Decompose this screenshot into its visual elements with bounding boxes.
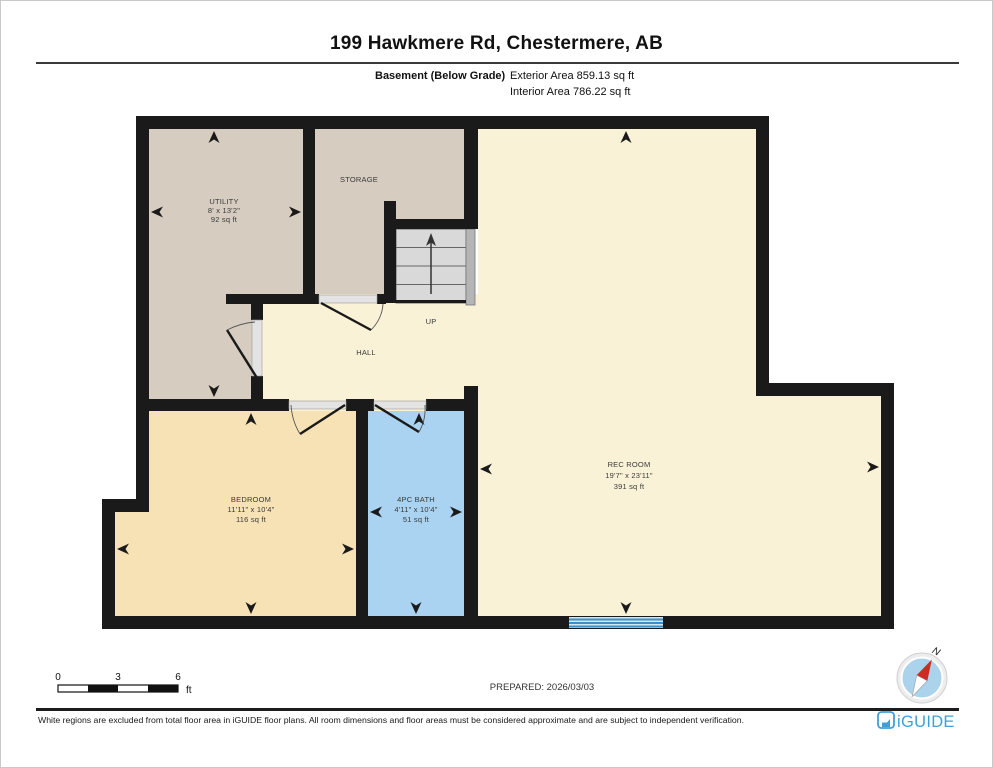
- utility-name: UTILITY: [209, 197, 238, 206]
- utility-area: 92 sq ft: [211, 215, 238, 224]
- floorplan-drawing: UTILITY 8' x 13'2" 92 sq ft STORAGE UP H…: [1, 1, 993, 768]
- storage-door-threshold: [319, 295, 377, 303]
- utility-dims: 8' x 13'2": [208, 206, 240, 215]
- bedroom-area: 116 sq ft: [236, 515, 267, 524]
- scale-bar-segment: [88, 685, 118, 692]
- bedroom-dims: 11'11" x 10'4": [228, 505, 275, 514]
- scale-bar-segment: [148, 685, 178, 692]
- utility-door-threshold: [252, 320, 262, 376]
- rec-room-floor: [478, 129, 881, 616]
- rec-room-dims: 19'7" x 23'11": [605, 471, 653, 480]
- iguide-logo: iGUIDE: [878, 712, 955, 731]
- stair-railing: [466, 229, 475, 305]
- prepared-date: PREPARED: 2026/03/03: [490, 682, 594, 693]
- rec-room-area: 391 sq ft: [614, 482, 645, 491]
- rec-room-name: REC ROOM: [608, 460, 651, 469]
- bath-name: 4PC BATH: [397, 495, 435, 504]
- floorplan-page: 199 Hawkmere Rd, Chestermere, AB Basemen…: [0, 0, 993, 768]
- staircase: [396, 229, 475, 305]
- rec-room-window: [569, 617, 663, 628]
- storage-name: STORAGE: [340, 175, 378, 184]
- bath-area: 51 sq ft: [403, 515, 430, 524]
- scale-start-label: 0: [55, 672, 61, 683]
- scale-mid-label: 3: [115, 672, 121, 683]
- bedroom-door-threshold: [289, 401, 346, 409]
- disclaimer-text: White regions are excluded from total fl…: [38, 715, 838, 725]
- iguide-wordmark: iGUIDE: [897, 713, 955, 731]
- stairs-up-label: UP: [426, 317, 437, 326]
- compass-icon: N: [897, 644, 947, 703]
- bath-dims: 4'11" x 10'4": [394, 505, 437, 514]
- bedroom-name: BEDROOM: [231, 495, 271, 504]
- stair-bottom-edge: [396, 300, 466, 303]
- footer-divider: [36, 708, 959, 711]
- hall-name: HALL: [356, 348, 376, 357]
- scale-bar: 0 3 6 ft: [55, 672, 192, 696]
- scale-unit-label: ft: [186, 685, 192, 696]
- iguide-logo-glyph: [882, 719, 890, 727]
- scale-end-label: 6: [175, 672, 181, 683]
